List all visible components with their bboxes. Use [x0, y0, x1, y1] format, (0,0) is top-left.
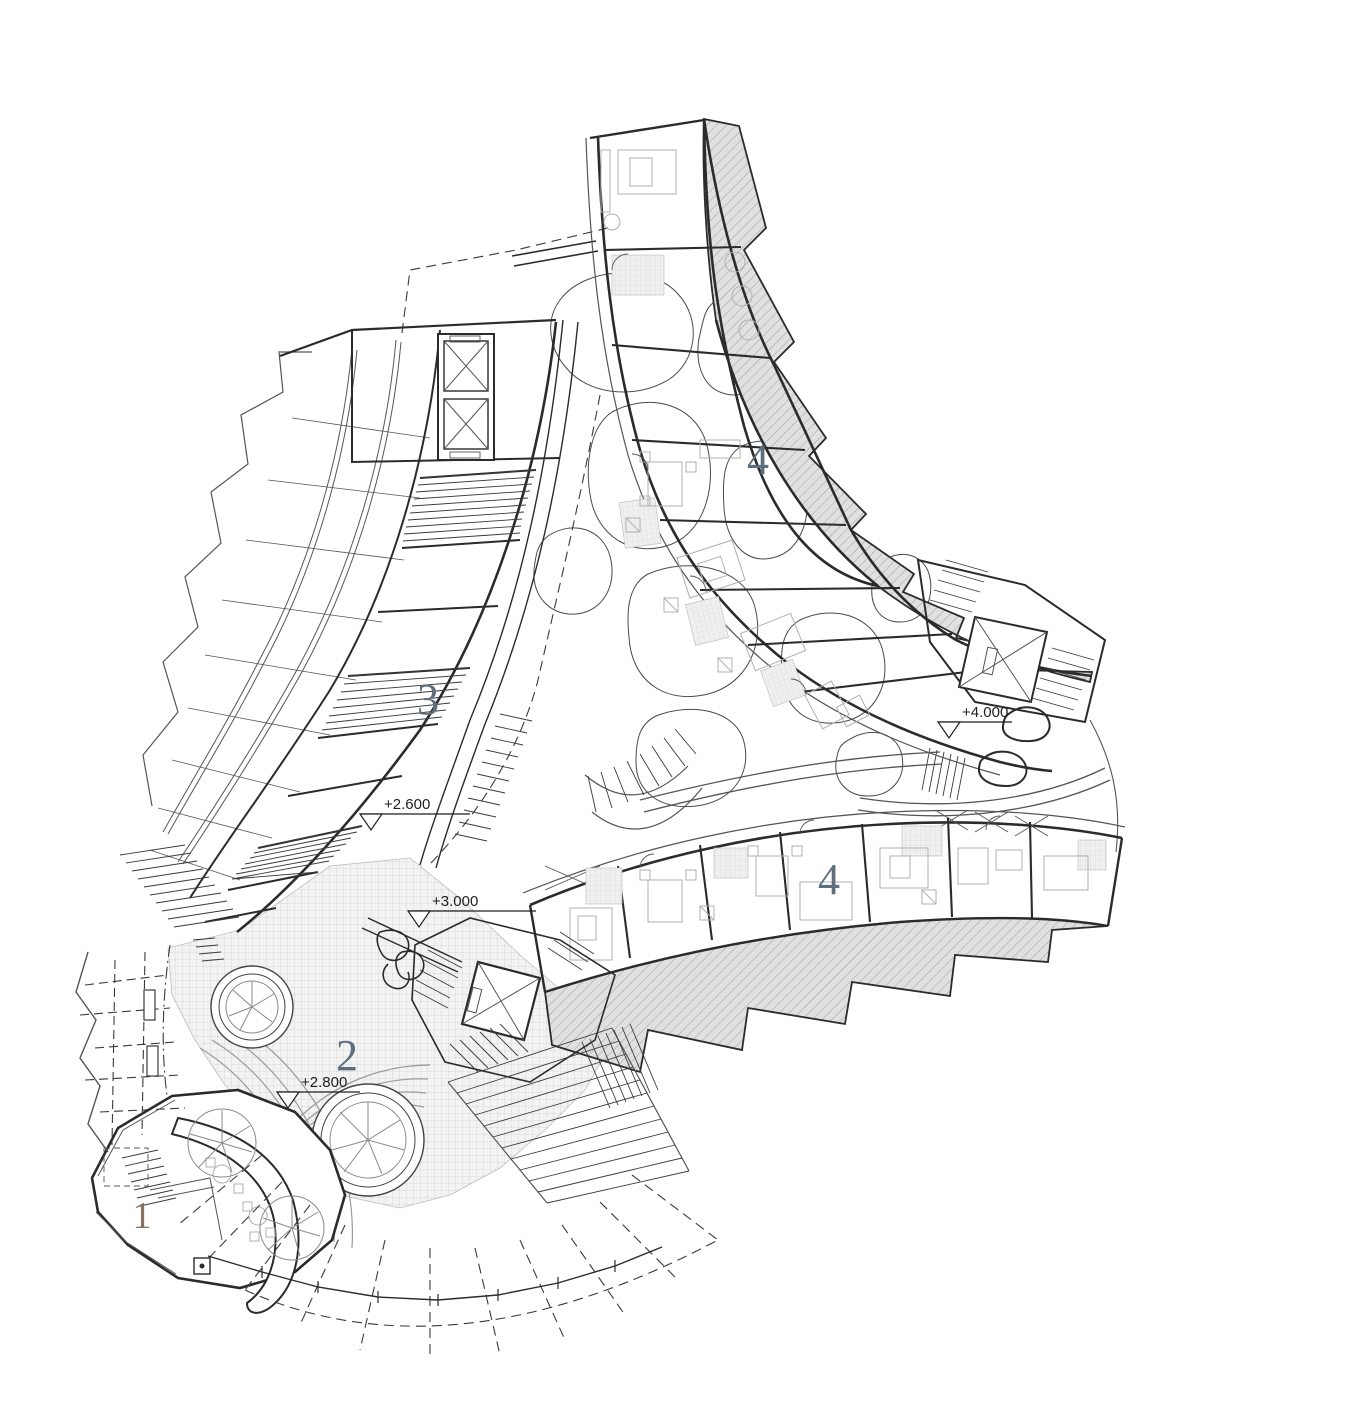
tiled-floors-lower [586, 826, 1106, 904]
lower-balconies-hatched [545, 918, 1108, 1072]
upper-stair-core [918, 560, 1105, 722]
zone-label-3: 3 [417, 675, 439, 724]
building-1 [92, 1090, 345, 1313]
elevation-marker-4000: +4.000 [938, 704, 1012, 738]
elevation-text: +3.000 [432, 893, 478, 910]
wing-3-elevator-core [352, 330, 560, 462]
wing-3 [120, 241, 598, 961]
wing-4-lower [523, 810, 1125, 1072]
elevation-triangle-icon [938, 722, 960, 738]
upper-balconies-hatched [704, 119, 1093, 682]
zone-label-4-upper: 4 [747, 435, 769, 484]
zone-label-4-lower: 4 [818, 855, 840, 904]
floor-plan-page: +2.600 +3.000 +2.800 +4.000 1 2 3 4 4 [0, 0, 1348, 1413]
elevation-text: +2.600 [384, 796, 430, 813]
planter-tree-large [211, 966, 293, 1048]
zone-label-1: 1 [133, 1195, 152, 1237]
floor-plan-canvas: +2.600 +3.000 +2.800 +4.000 1 2 3 4 4 [0, 0, 1348, 1413]
stair-to-terrace [922, 748, 965, 800]
elevation-text: +4.000 [962, 704, 1008, 721]
elevation-triangle-icon [360, 814, 382, 830]
zone-label-2: 2 [336, 1031, 358, 1080]
